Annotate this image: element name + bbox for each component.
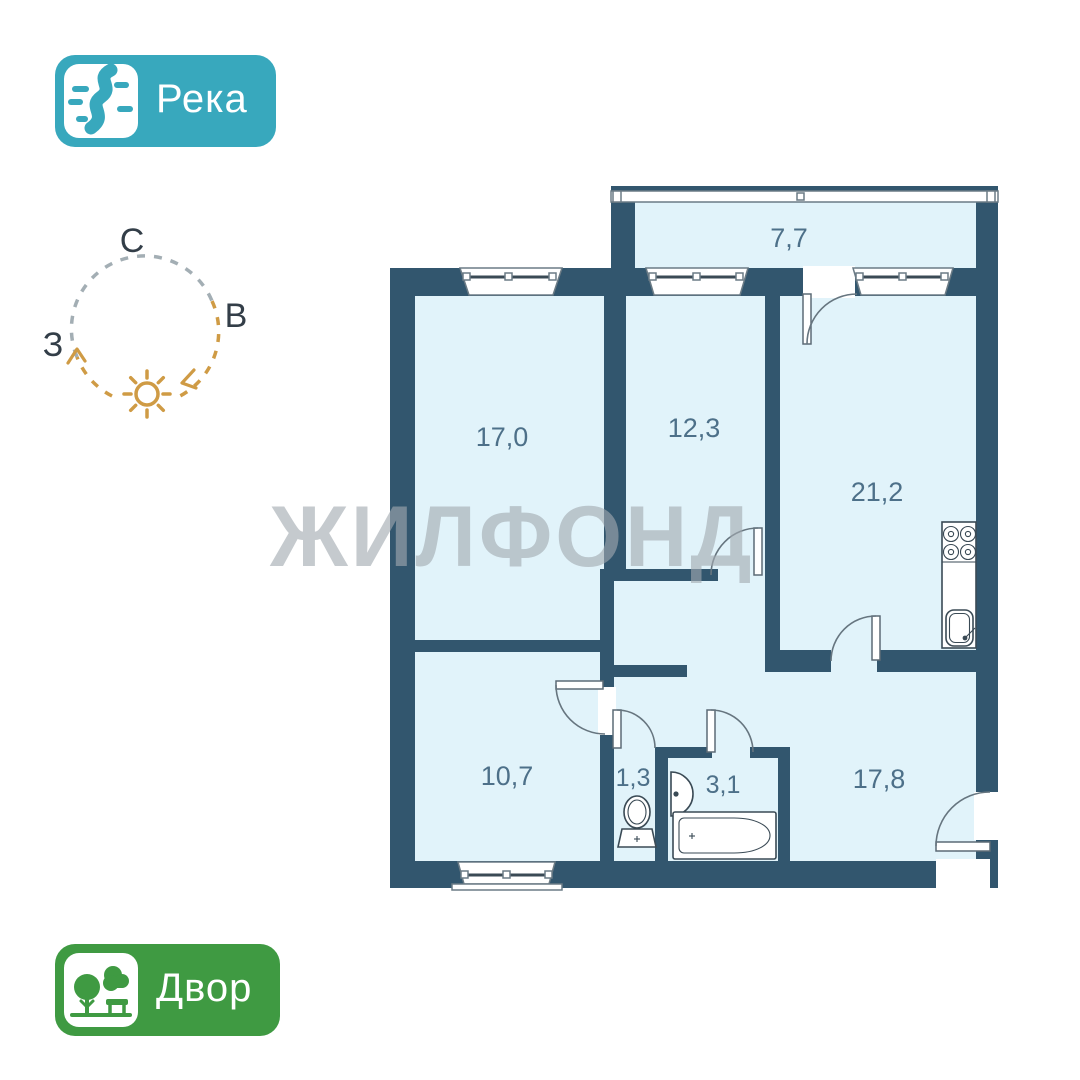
river-icon — [64, 64, 138, 138]
room-area-label: 10,7 — [481, 761, 534, 791]
compass: С В З — [43, 222, 248, 417]
sink-icon — [946, 610, 975, 646]
compass-ring-sun-east — [180, 301, 219, 396]
floorplan-canvas: С В З — [0, 0, 1080, 1080]
balcony-glazing — [611, 186, 998, 202]
bathtub-icon — [673, 812, 776, 859]
yard-iconbox — [64, 953, 138, 1027]
yard-badge: Двор — [55, 944, 280, 1036]
room-area-label: 1,3 — [616, 764, 651, 792]
compass-north-label: С — [120, 222, 145, 260]
room-area-label: 21,2 — [851, 477, 904, 507]
window — [646, 268, 748, 295]
trees-icon — [64, 953, 138, 1027]
compass-ring-north — [71, 256, 212, 357]
room-area-label: 17,8 — [853, 764, 906, 794]
river-badge: Река — [55, 55, 276, 147]
kitchen-counter — [942, 522, 976, 648]
window — [452, 862, 562, 890]
compass-west-label: З — [43, 326, 64, 364]
window — [460, 268, 562, 295]
yard-badge-label: Двор — [156, 968, 252, 1012]
river-iconbox — [64, 64, 138, 138]
room-area-label: 12,3 — [668, 413, 721, 443]
window — [853, 268, 953, 295]
river-badge-label: Река — [156, 79, 248, 123]
compass-east-label: В — [225, 297, 248, 335]
sun-icon — [124, 371, 170, 417]
compass-ring-sun-west — [77, 357, 112, 396]
room-area-label: 3,1 — [706, 771, 741, 799]
floor-plan: 7,7 17,0 12,3 21,2 10,7 1,3 3,1 17,8 — [390, 186, 1000, 890]
room-area-label: 17,0 — [476, 422, 529, 452]
room-area-label: 7,7 — [770, 223, 808, 253]
